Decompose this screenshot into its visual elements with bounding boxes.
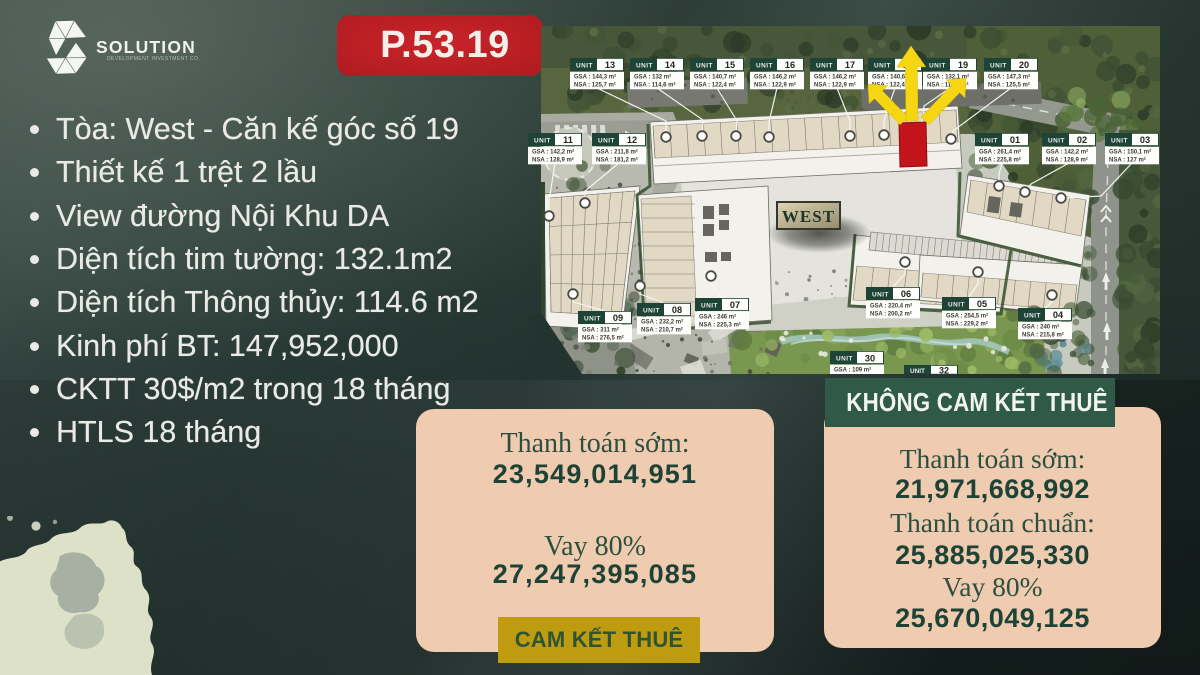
svg-text:NSA : 200,2 m²: NSA : 200,2 m² [870, 311, 912, 318]
svg-text:GSA : 261,4 m²: GSA : 261,4 m² [979, 149, 1021, 156]
svg-text:UNIT: UNIT [636, 62, 653, 69]
svg-text:GSA : 240 m²: GSA : 240 m² [1022, 324, 1059, 331]
svg-text:NSA : 125,5 m²: NSA : 125,5 m² [988, 82, 1030, 89]
svg-text:NSA : 225,3 m²: NSA : 225,3 m² [699, 322, 741, 329]
svg-text:06: 06 [901, 289, 911, 299]
svg-text:UNIT: UNIT [696, 62, 713, 69]
svg-text:NSA : 128,9 m²: NSA : 128,9 m² [532, 157, 574, 164]
svg-text:GSA : 142,2 m²: GSA : 142,2 m² [532, 149, 574, 156]
svg-text:UNIT: UNIT [981, 137, 998, 144]
svg-text:GSA : 220,4 m²: GSA : 220,4 m² [870, 303, 912, 310]
svg-text:UNIT: UNIT [534, 137, 551, 144]
svg-text:GSA : 232,2 m²: GSA : 232,2 m² [641, 319, 683, 326]
svg-text:GSA : 109 m²: GSA : 109 m² [834, 367, 871, 374]
svg-text:UNIT: UNIT [1111, 137, 1128, 144]
svg-text:01: 01 [1010, 135, 1020, 145]
svg-text:32: 32 [939, 365, 949, 375]
svg-text:GSA : 144,3 m²: GSA : 144,3 m² [574, 74, 616, 81]
svg-text:NSA : 122,4 m²: NSA : 122,4 m² [694, 82, 736, 89]
svg-text:09: 09 [613, 313, 623, 323]
svg-text:UNIT: UNIT [576, 62, 593, 69]
svg-text:03: 03 [1140, 135, 1150, 145]
svg-text:14: 14 [665, 60, 676, 70]
svg-text:GSA : 150,1 m²: GSA : 150,1 m² [1109, 149, 1151, 156]
svg-text:UNIT: UNIT [816, 62, 833, 69]
svg-text:NSA : 114,6 m²: NSA : 114,6 m² [634, 82, 675, 89]
svg-text:NSA : 229,2 m²: NSA : 229,2 m² [946, 321, 988, 328]
svg-text:UNIT: UNIT [836, 355, 853, 362]
svg-text:NSA : 210,7 m²: NSA : 210,7 m² [641, 327, 683, 334]
svg-text:11: 11 [563, 135, 573, 145]
svg-text:UNIT: UNIT [1024, 312, 1041, 319]
svg-text:UNIT: UNIT [643, 307, 660, 314]
svg-text:NSA : 127 m²: NSA : 127 m² [1109, 157, 1146, 164]
svg-text:GSA : 140,7 m²: GSA : 140,7 m² [694, 74, 736, 81]
svg-text:UNIT: UNIT [948, 301, 965, 308]
svg-text:UNIT: UNIT [756, 62, 773, 69]
svg-text:NSA : 122,9 m²: NSA : 122,9 m² [754, 82, 796, 89]
svg-text:NSA : 125,7 m²: NSA : 125,7 m² [574, 82, 616, 89]
svg-text:GSA : 147,3 m²: GSA : 147,3 m² [988, 74, 1030, 81]
svg-text:05: 05 [977, 299, 987, 309]
svg-text:04: 04 [1053, 310, 1064, 320]
svg-text:UNIT: UNIT [701, 302, 718, 309]
svg-text:NSA : 128,9 m²: NSA : 128,9 m² [1046, 157, 1088, 164]
svg-text:02: 02 [1077, 135, 1087, 145]
svg-text:UNIT: UNIT [990, 62, 1007, 69]
svg-text:WEST: WEST [782, 207, 835, 226]
svg-text:GSA : 211,8 m²: GSA : 211,8 m² [596, 149, 638, 156]
svg-text:16: 16 [785, 60, 795, 70]
svg-text:GSA : 246 m²: GSA : 246 m² [699, 314, 736, 321]
svg-text:UNIT: UNIT [929, 62, 946, 69]
svg-text:UNIT: UNIT [872, 291, 889, 298]
svg-text:GSA : 132 m²: GSA : 132 m² [634, 74, 671, 81]
svg-text:GSA : 146,2 m²: GSA : 146,2 m² [754, 74, 796, 81]
svg-text:GSA : 146,2 m²: GSA : 146,2 m² [814, 74, 856, 81]
svg-text:07: 07 [730, 300, 740, 310]
svg-text:15: 15 [725, 60, 735, 70]
svg-text:NSA : 181,2 m²: NSA : 181,2 m² [596, 157, 638, 164]
svg-text:NSA : 122,9 m²: NSA : 122,9 m² [814, 82, 856, 89]
svg-text:30: 30 [865, 353, 875, 363]
svg-text:GSA : 254,5 m²: GSA : 254,5 m² [946, 313, 988, 320]
svg-text:NSA : 225,8 m²: NSA : 225,8 m² [979, 157, 1021, 164]
svg-text:UNIT: UNIT [910, 368, 925, 375]
svg-text:UNIT: UNIT [874, 62, 891, 69]
svg-text:UNIT: UNIT [1048, 137, 1065, 144]
svg-text:GSA : 142,2 m²: GSA : 142,2 m² [1046, 149, 1088, 156]
svg-text:NSA : 215,8 m²: NSA : 215,8 m² [1022, 332, 1064, 339]
svg-text:19: 19 [958, 60, 968, 70]
svg-text:17: 17 [845, 60, 855, 70]
svg-text:13: 13 [605, 60, 615, 70]
svg-text:20: 20 [1019, 60, 1029, 70]
svg-text:12: 12 [627, 135, 637, 145]
svg-text:UNIT: UNIT [598, 137, 615, 144]
svg-text:08: 08 [672, 305, 682, 315]
